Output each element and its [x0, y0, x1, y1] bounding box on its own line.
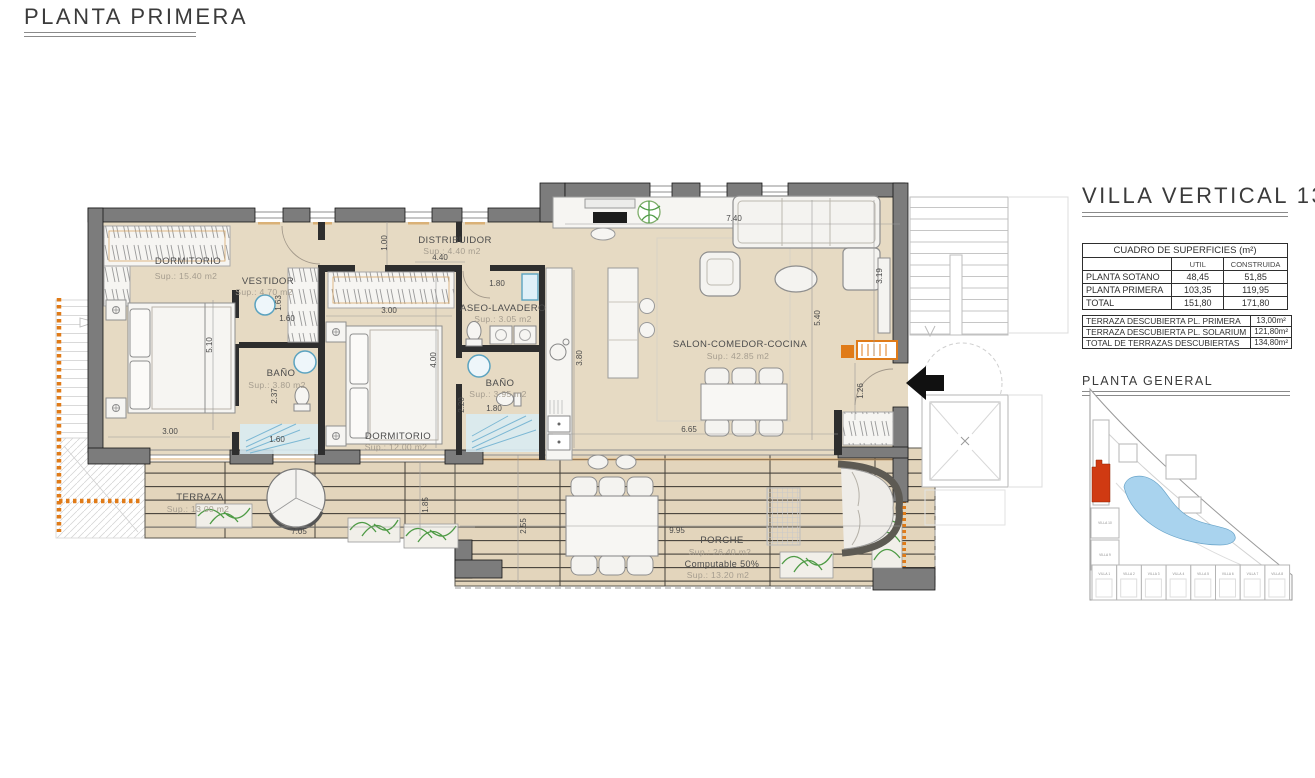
room-label-aseo-lavadero: ASEO-LAVADERO	[460, 303, 546, 314]
porch-rug	[767, 488, 800, 545]
svg-text:Sup.: 42.85 m2: Sup.: 42.85 m2	[707, 351, 770, 361]
svg-text:Sup.: 3.05 m2: Sup.: 3.05 m2	[474, 314, 531, 324]
site-plan-title: PLANTA GENERAL	[1082, 374, 1292, 388]
svg-text:6.65: 6.65	[681, 425, 697, 434]
svg-text:Sup.: 3.95 m2: Sup.: 3.95 m2	[469, 389, 526, 399]
sofa	[733, 196, 880, 248]
villa-title-rule	[1082, 212, 1288, 217]
table-row: TERRAZA DESCUBIERTA PL. SOLARIUM 121,80m…	[1083, 327, 1292, 338]
svg-text:VILLA 4: VILLA 4	[1172, 572, 1184, 576]
svg-text:1.63: 1.63	[274, 295, 283, 311]
page-title-block: PLANTA PRIMERA	[24, 4, 248, 37]
table-row: TOTAL 151,80 171,80	[1083, 297, 1288, 310]
svg-text:VILLA 10: VILLA 10	[1098, 521, 1112, 525]
svg-text:3.19: 3.19	[875, 268, 884, 284]
svg-text:2.37: 2.37	[270, 388, 279, 404]
communal-stairs	[910, 197, 1068, 525]
svg-text:VILLA 8: VILLA 8	[1271, 572, 1283, 576]
svg-text:4.00: 4.00	[429, 352, 438, 368]
svg-text:9.95: 9.95	[669, 526, 685, 535]
room-label-bano-2: BAÑO	[486, 378, 515, 389]
kitchen-island	[608, 268, 638, 378]
dining-set	[701, 368, 787, 436]
svg-text:VILLA 7: VILLA 7	[1247, 572, 1259, 576]
svg-text:Sup.: 13.00 m2: Sup.: 13.00 m2	[167, 504, 230, 514]
room-label-dormitorio-1: DORMITORIO	[155, 256, 221, 267]
surfaces-table: CUADRO DE SUPERFICIES (m²) UTIL CONSTRUI…	[1082, 243, 1288, 310]
page-title: PLANTA PRIMERA	[24, 4, 248, 30]
svg-text:Sup.: 4.70 m2: Sup.: 4.70 m2	[235, 287, 292, 297]
svg-text:2.55: 2.55	[519, 518, 528, 534]
svg-text:1.26: 1.26	[856, 383, 865, 399]
svg-text:Sup.: 13.20 m2: Sup.: 13.20 m2	[687, 570, 750, 580]
svg-text:1.00: 1.00	[380, 235, 389, 251]
table-row: CUADRO DE SUPERFICIES (m²)	[1083, 244, 1288, 258]
svg-text:VILLA 5: VILLA 5	[1197, 572, 1209, 576]
svg-text:Sup.: 4.40 m2: Sup.: 4.40 m2	[423, 246, 480, 256]
svg-text:VILLA 9: VILLA 9	[1099, 553, 1111, 557]
terrace-table: TERRAZA DESCUBIERTA PL. PRIMERA 13,00m² …	[1082, 315, 1292, 349]
bano1-basin	[294, 351, 316, 373]
svg-text:5.40: 5.40	[813, 310, 822, 326]
svg-text:1.60: 1.60	[279, 314, 295, 323]
svg-text:3.00: 3.00	[381, 306, 397, 315]
svg-text:VILLA 1: VILLA 1	[1098, 572, 1110, 576]
room-label-terraza: TERRAZA	[176, 492, 224, 503]
svg-text:7.40: 7.40	[726, 214, 742, 223]
svg-text:Computable 50%: Computable 50%	[685, 559, 760, 569]
table-row: PLANTA SOTANO 48,45 51,85	[1083, 271, 1288, 284]
table-row: UTIL CONSTRUIDA	[1083, 258, 1288, 271]
svg-text:Sup.: 12.00 m2: Sup.: 12.00 m2	[365, 442, 428, 452]
table-row: PLANTA PRIMERA 103,35 119,95	[1083, 284, 1288, 297]
spiral-stair	[267, 469, 325, 529]
room-label-vestidor: VESTIDOR	[242, 276, 294, 287]
svg-text:3.00: 3.00	[162, 427, 178, 436]
coffee-table	[775, 266, 817, 292]
title-rule	[24, 32, 196, 37]
svg-text:Sup.: 3.80 m2: Sup.: 3.80 m2	[248, 380, 305, 390]
svg-text:1.60: 1.60	[269, 435, 285, 444]
room-label-porche: PORCHE	[700, 535, 743, 546]
room-label-bano-1: BAÑO	[267, 368, 296, 379]
table-row: TERRAZA DESCUBIERTA PL. PRIMERA 13,00m²	[1083, 316, 1292, 327]
table-row: TOTAL DE TERRAZAS DESCUBIERTAS 134,80m²	[1083, 338, 1292, 349]
villa-title: VILLA VERTICAL 13	[1082, 183, 1292, 209]
room-label-salon: SALON-COMEDOR-COCINA	[673, 339, 808, 350]
elevator	[922, 395, 1008, 487]
svg-text:VILLA 2: VILLA 2	[1123, 572, 1135, 576]
svg-text:1.80: 1.80	[486, 404, 502, 413]
svg-text:Sup.: 26.40 m2: Sup.: 26.40 m2	[689, 547, 752, 557]
svg-text:VILLA 3: VILLA 3	[1148, 572, 1160, 576]
site-plan: VILLA 10 VILLA 9 VILLA 1 VILLA 2 VILLA 3…	[1086, 387, 1298, 602]
svg-text:3.80: 3.80	[575, 350, 584, 366]
svg-text:5.10: 5.10	[205, 337, 214, 353]
svg-text:VILLA 6: VILLA 6	[1222, 572, 1234, 576]
svg-text:7.05: 7.05	[291, 527, 307, 536]
villa-plots-bottom: VILLA 1 VILLA 2 VILLA 3 VILLA 4 VILLA 5 …	[1092, 565, 1290, 600]
bano2-basin	[468, 355, 490, 377]
vestidor-basin	[255, 295, 275, 315]
room-label-distribuidor: DISTRIBUIDOR	[418, 235, 492, 246]
info-panel: VILLA VERTICAL 13 CUADRO DE SUPERFICIES …	[1082, 183, 1292, 396]
svg-text:1.80: 1.80	[489, 279, 505, 288]
cooktop	[593, 212, 627, 223]
svg-text:Sup.: 15.40 m2: Sup.: 15.40 m2	[155, 271, 218, 281]
room-label-dormitorio-2: DORMITORIO	[365, 431, 431, 442]
svg-text:2.20: 2.20	[457, 397, 466, 413]
svg-text:1.85: 1.85	[421, 497, 430, 513]
